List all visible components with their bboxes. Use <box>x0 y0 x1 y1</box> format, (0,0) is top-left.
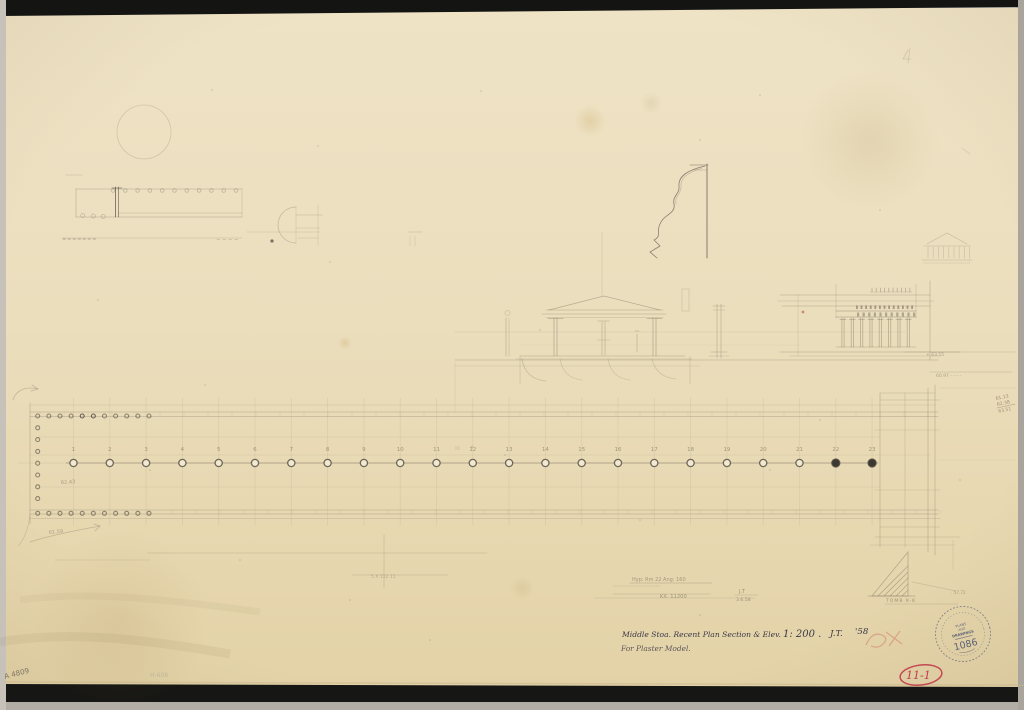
speck <box>769 469 771 471</box>
triglyph <box>868 313 870 317</box>
plan-column-9 <box>360 459 367 466</box>
dentil <box>897 306 899 310</box>
plan-column-number: 19 <box>723 447 730 453</box>
speck <box>504 454 506 456</box>
title-line-2: For Plaster Model. <box>620 644 691 653</box>
triglyph <box>885 313 887 317</box>
triglyph <box>896 313 898 317</box>
tomb-label: TOMB K-K <box>885 598 916 604</box>
speck <box>97 299 99 301</box>
speck <box>149 469 151 471</box>
title-year: '58 <box>855 627 869 637</box>
plan-column-17 <box>651 459 658 466</box>
plan-column-number: 14 <box>542 447 549 453</box>
plan-column-number: 16 <box>615 447 622 453</box>
plan-column-number: 11 <box>433 447 440 453</box>
plan-column-number: 2 <box>108 447 111 453</box>
speck <box>349 599 351 601</box>
dentil <box>856 306 858 310</box>
plan-column-18 <box>687 459 694 466</box>
speck <box>759 94 761 96</box>
speck <box>699 614 701 616</box>
title-initials: J.T. <box>828 629 843 639</box>
plan-column-number: 20 <box>760 447 767 453</box>
plan-column-23 <box>868 459 876 467</box>
dentil <box>874 306 876 310</box>
plan-column-number: 22 <box>832 447 839 453</box>
plan-column-12 <box>469 459 476 466</box>
plan-column-22 <box>832 459 840 467</box>
plan-column-15 <box>578 459 585 466</box>
triglyph <box>879 313 881 317</box>
scan-strip-left <box>0 0 6 710</box>
speck <box>317 145 319 147</box>
triglyph <box>863 313 865 317</box>
speck <box>879 209 881 211</box>
note-kx: KX. 11200 <box>660 594 687 600</box>
note-row-1: Hyp: Rm 22 Ang: 160 <box>632 577 686 583</box>
dentil <box>902 306 904 310</box>
plan-column-number: 18 <box>687 447 694 453</box>
plan-column-number: 13 <box>506 447 513 453</box>
triglyph <box>913 313 915 317</box>
dentil <box>865 306 867 310</box>
speck <box>429 639 431 641</box>
dentil <box>893 306 895 310</box>
scan-strip-right <box>1018 0 1024 710</box>
triglyph <box>902 313 904 317</box>
page-number: 11-1 <box>906 669 931 682</box>
plan-column-7 <box>288 459 295 466</box>
plan-column-16 <box>614 459 621 466</box>
plan-column-19 <box>723 459 730 466</box>
dark-speck <box>270 239 273 242</box>
plan-column-21 <box>796 459 803 466</box>
note-date: 3.6.58 <box>736 597 751 603</box>
plan-column-5 <box>215 459 222 466</box>
plan-column-number: 4 <box>181 447 185 453</box>
dentil <box>879 306 881 310</box>
plan-column-4 <box>179 459 186 466</box>
speck <box>211 89 213 91</box>
elevation-mid-label: 60.97 - - - - <box>936 373 961 379</box>
plan-column-number: 15 <box>578 447 585 453</box>
plan-column-number: 17 <box>651 447 658 453</box>
plan-column-number: 7 <box>290 447 293 453</box>
plan-column-3 <box>143 459 150 466</box>
speck <box>539 329 541 331</box>
plan-column-number: 1 <box>72 447 75 453</box>
faint-note: 5 X 112 11 <box>371 574 396 580</box>
dentil <box>861 306 863 310</box>
plan-column-number: 23 <box>869 447 876 453</box>
plan-column-number: 8 <box>326 447 330 453</box>
plan-column-8 <box>324 459 331 466</box>
plan-column-6 <box>251 459 258 466</box>
west-elevation-lower: 61.59 <box>49 529 64 536</box>
speck <box>480 90 482 92</box>
triglyph <box>891 313 893 317</box>
plan-column-20 <box>760 459 767 466</box>
dentil <box>870 306 872 310</box>
title-scale: 1: 200 . <box>783 629 821 640</box>
note-initials: J.T <box>738 589 745 595</box>
plan-column-1 <box>70 459 77 466</box>
plan-column-11 <box>433 459 440 466</box>
plan-column-14 <box>542 459 549 466</box>
plan-column-number: 6 <box>253 447 257 453</box>
speck <box>204 384 206 386</box>
speck <box>699 139 701 141</box>
triglyph <box>907 313 909 317</box>
west-elevation-upper: 62.43 <box>61 479 76 486</box>
drawing-scan: 1234567891011121314151617181920212223 62… <box>0 0 1024 710</box>
plan-column-number: 5 <box>217 447 220 453</box>
plan-column-10 <box>397 459 404 466</box>
scanned-drawing-page: 1234567891011121314151617181920212223 62… <box>0 0 1024 710</box>
dentil <box>907 306 909 310</box>
speck <box>639 519 641 521</box>
plan-column-13 <box>506 459 513 466</box>
plan-column-number: 9 <box>362 447 366 453</box>
speck <box>819 419 821 421</box>
triglyph <box>874 313 876 317</box>
dentil <box>888 306 890 310</box>
speck <box>239 559 241 561</box>
triglyph <box>857 313 859 317</box>
dentil <box>911 306 913 310</box>
speck <box>959 479 961 481</box>
plan-column-number: 3 <box>144 447 147 453</box>
speck <box>329 261 331 263</box>
elevation-top-label: + 63.55 <box>926 352 944 358</box>
faint-corner-mark: H-608 <box>150 672 168 679</box>
spot-elevation-small: . 57.72 <box>951 590 966 595</box>
plan-column-number: 10 <box>397 447 404 453</box>
title-line-1: Middle Stoa. Recent Plan Section & Elev. <box>621 630 781 639</box>
plan-column-2 <box>106 459 113 466</box>
dentil <box>884 306 886 310</box>
plan-column-number: 21 <box>796 447 803 453</box>
